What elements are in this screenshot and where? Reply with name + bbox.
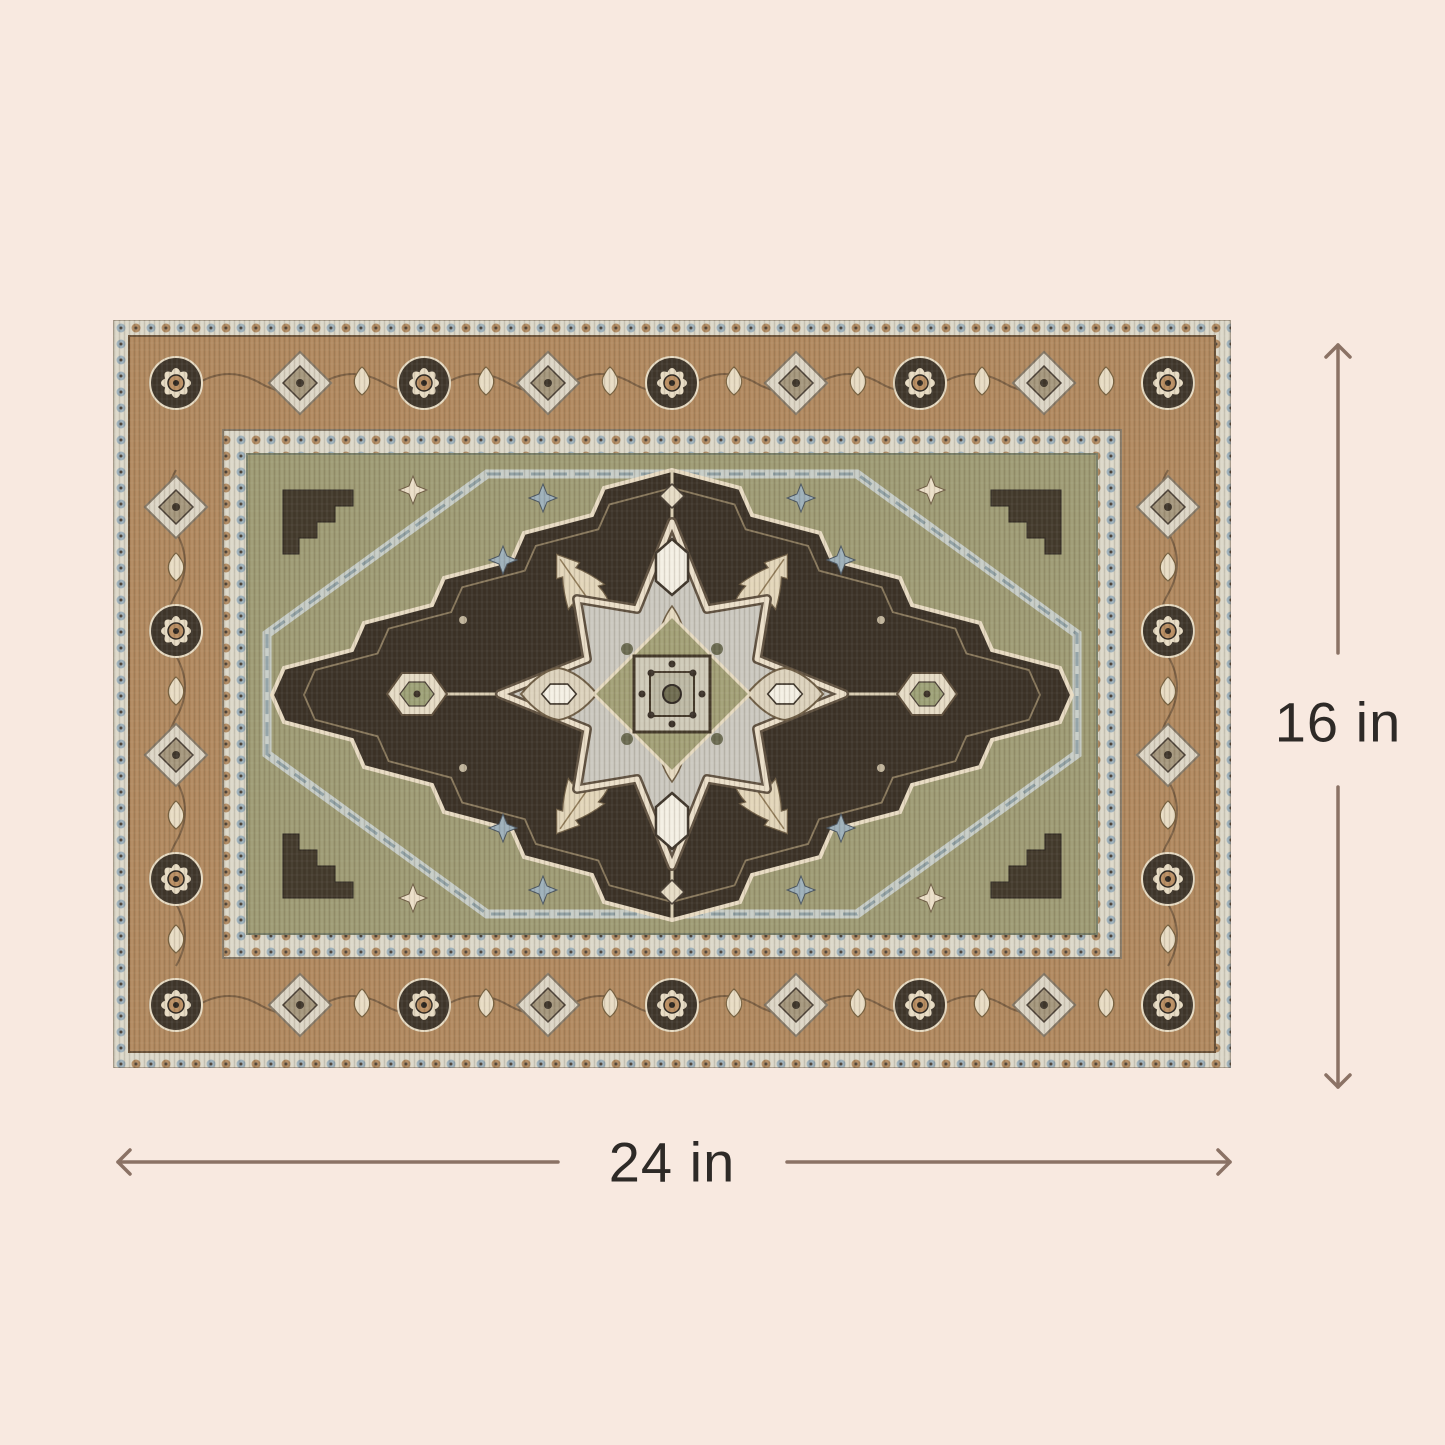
rug-image — [113, 320, 1231, 1068]
rug-graphic — [113, 320, 1231, 1068]
width-dimension-label: 24 in — [609, 1131, 735, 1194]
width-dimension-annotation: 24 in — [108, 1102, 1243, 1222]
product-dimension-image: 16 in 24 in — [0, 0, 1445, 1445]
height-dimension-annotation: 16 in — [1255, 336, 1425, 1096]
height-dimension-label: 16 in — [1275, 691, 1401, 754]
rug-weave-texture — [113, 320, 1231, 1068]
